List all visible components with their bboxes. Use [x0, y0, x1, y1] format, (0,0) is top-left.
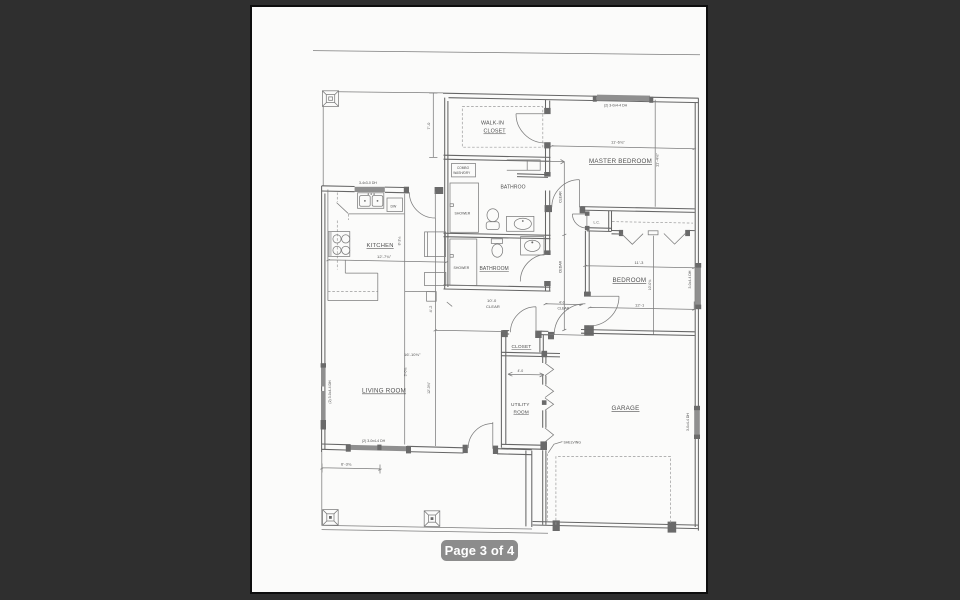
svg-text:COMBO: COMBO — [457, 166, 470, 170]
svg-text:CLOSET: CLOSET — [512, 344, 532, 350]
svg-text:(2) 3-0x4-4 DH: (2) 3-0x4-4 DH — [604, 103, 628, 107]
svg-text:CEDAR: CEDAR — [559, 260, 563, 273]
svg-text:L.C.: L.C. — [594, 221, 600, 225]
svg-text:BEDROOM: BEDROOM — [613, 277, 647, 284]
svg-text:3-0x4-4 DH: 3-0x4-4 DH — [686, 413, 690, 431]
svg-text:CLEAR: CLEAR — [486, 304, 500, 309]
svg-text:KITCHEN: KITCHEN — [367, 243, 394, 249]
svg-text:6'-3¾: 6'-3¾ — [341, 461, 352, 466]
svg-text:CLEAR: CLEAR — [559, 191, 563, 203]
svg-text:WASH/DRY: WASH/DRY — [453, 171, 471, 175]
svg-text:12'-3¾": 12'-3¾" — [427, 381, 431, 394]
svg-text:CLEAR: CLEAR — [558, 307, 570, 311]
svg-text:4'-0: 4'-0 — [518, 369, 524, 373]
svg-text:BATHROO: BATHROO — [501, 185, 526, 191]
svg-text:3-4x3-0 DH: 3-4x3-0 DH — [359, 181, 377, 185]
svg-text:SHOWER: SHOWER — [454, 266, 470, 270]
svg-text:GARAGE: GARAGE — [612, 405, 640, 412]
svg-text:11'-3: 11'-3 — [635, 260, 645, 265]
svg-text:SHOWER: SHOWER — [455, 212, 471, 216]
svg-text:12'-1: 12'-1 — [635, 302, 645, 307]
svg-text:(2) 3-0x4-4 DH: (2) 3-0x4-4 DH — [362, 439, 386, 443]
svg-text:16'-10⅛": 16'-10⅛" — [404, 352, 421, 357]
svg-text:3-0x4-4 DH: 3-0x4-4 DH — [688, 270, 692, 288]
svg-text:DW: DW — [391, 204, 398, 208]
svg-text:3'-0¾: 3'-0¾ — [404, 368, 408, 377]
svg-text:10'-0: 10'-0 — [487, 298, 497, 303]
svg-text:11'-4¾": 11'-4¾" — [654, 153, 659, 167]
svg-text:BATHROOM: BATHROOM — [480, 266, 509, 272]
svg-text:4'-2: 4'-2 — [428, 305, 433, 313]
svg-text:CLOSET: CLOSET — [484, 129, 507, 135]
svg-text:7'-0: 7'-0 — [426, 122, 431, 130]
svg-text:MASTER BEDROOM: MASTER BEDROOM — [589, 158, 652, 165]
svg-text:UTILITY: UTILITY — [511, 402, 530, 408]
svg-text:LIVING ROOM: LIVING ROOM — [362, 388, 406, 395]
svg-text:11'-6¾": 11'-6¾" — [611, 140, 625, 145]
svg-text:ROOM: ROOM — [514, 410, 529, 416]
svg-text:12'-7¾": 12'-7¾" — [377, 254, 392, 259]
svg-text:8'-2¼: 8'-2¼ — [397, 237, 401, 246]
svg-text:(2) 3-0x4-4 DH: (2) 3-0x4-4 DH — [328, 380, 332, 404]
svg-text:SHELVING: SHELVING — [564, 440, 582, 444]
svg-text:10'-0¾: 10'-0¾ — [648, 280, 652, 291]
svg-text:WALK-IN: WALK-IN — [481, 121, 504, 127]
